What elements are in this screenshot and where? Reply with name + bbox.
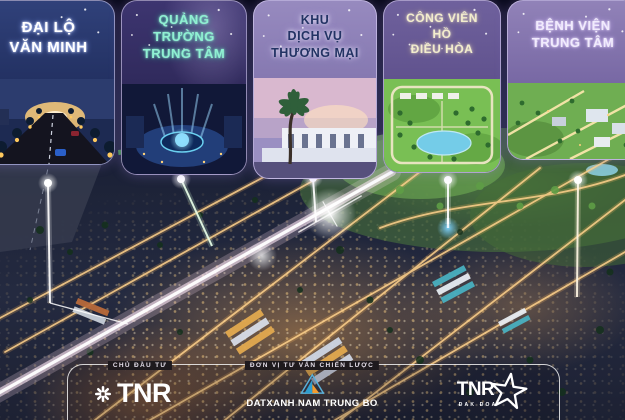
hospital-area-illustration <box>508 83 625 159</box>
callout-card-benh-vien-trung-tam: BỆNH VIỆN TRUNG TÂM <box>507 0 625 160</box>
tnr-stars-logo-subtext: ĐAK ĐOA <box>459 402 498 408</box>
masterplan-poster: ĐẠI LỘ VĂN MINH QUẢNG TRƯỜNG <box>0 0 625 420</box>
card-title-line: TRƯỜNG <box>122 29 246 46</box>
card-title-line: ĐIỀU HÒA <box>384 42 500 58</box>
card-title-line: THƯƠNG MẠI <box>254 45 376 61</box>
card-title-line: BỆNH VIỆN <box>508 18 625 35</box>
card-title: QUẢNG TRƯỜNG TRUNG TÂM <box>122 1 246 63</box>
callout-card-khu-dich-vu-thuong-mai: KHU DỊCH VỤ THƯƠNG MẠI <box>253 0 377 179</box>
card-title-line: CÔNG VIÊN <box>384 11 500 27</box>
card-title: CÔNG VIÊN HỒ ĐIỀU HÒA <box>384 1 500 58</box>
card-title: ĐẠI LỘ VĂN MINH <box>0 1 114 57</box>
tnr-logo: TNR <box>94 378 171 409</box>
commercial-shophouses-illustration <box>254 78 376 178</box>
card-title-line: DỊCH VỤ <box>254 28 376 44</box>
consultant-label: ĐƠN VỊ TƯ VẤN CHIẾN LƯỢC <box>245 361 379 370</box>
card-title-line: ĐẠI LỘ <box>0 18 114 38</box>
central-plaza-illustration <box>122 84 246 174</box>
card-title-line: HỒ <box>384 27 500 43</box>
developer-label: CHỦ ĐẦU TƯ <box>108 361 172 370</box>
datxanh-logo: DATXANH NAM TRUNG BO <box>246 373 377 409</box>
callout-card-quang-truong-trung-tam: QUẢNG TRƯỜNG TRUNG TÂM <box>121 0 247 175</box>
card-title-line: QUẢNG <box>122 12 246 29</box>
card-title-line: VĂN MINH <box>0 38 114 58</box>
asterisk-snowflake-icon <box>94 385 112 403</box>
footer-logo-panel: CHỦ ĐẦU TƯ ĐƠN VỊ TƯ VẤN CHIẾN LƯỢC TNR … <box>67 364 560 420</box>
callout-card-cong-vien-ho-dieu-hoa: CÔNG VIÊN HỒ ĐIỀU HÒA <box>383 0 501 173</box>
callout-card-dai-lo-van-minh: ĐẠI LỘ VĂN MINH <box>0 0 115 165</box>
datxanh-logo-text: DATXANH NAM TRUNG BO <box>246 398 377 409</box>
triangle-logo-icon <box>300 373 324 395</box>
card-title-line: KHU <box>254 12 376 28</box>
card-title-line: TRUNG TÂM <box>508 35 625 52</box>
card-title-line: TRUNG TÂM <box>122 46 246 63</box>
card-title: BỆNH VIỆN TRUNG TÂM <box>508 1 625 52</box>
lake-park-illustration <box>384 79 500 172</box>
tnr-stars-logo: TNR ĐAK ĐOA <box>457 369 530 408</box>
night-boulevard-illustration <box>0 79 114 164</box>
card-title: KHU DỊCH VỤ THƯƠNG MẠI <box>254 1 376 61</box>
tnr-logo-text: TNR <box>117 378 171 409</box>
